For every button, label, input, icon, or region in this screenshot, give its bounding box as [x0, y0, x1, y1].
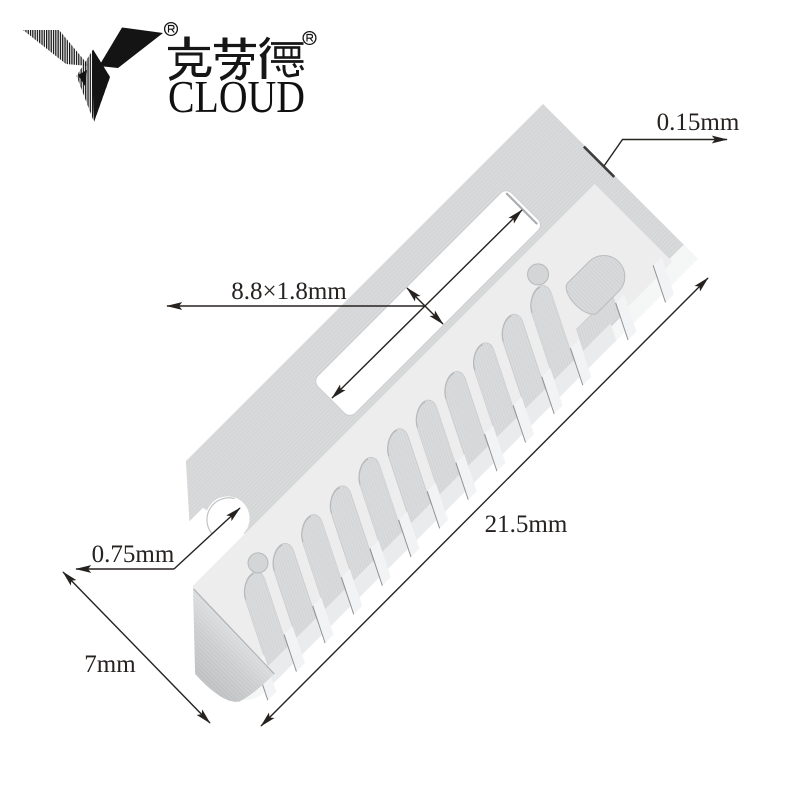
svg-text:0.15mm: 0.15mm: [657, 109, 740, 136]
svg-text:0.75mm: 0.75mm: [92, 541, 175, 568]
svg-text:21.5mm: 21.5mm: [485, 511, 568, 538]
svg-text:CLOUD: CLOUD: [168, 71, 305, 122]
svg-text:7mm: 7mm: [84, 651, 136, 678]
svg-text:8.8×1.8mm: 8.8×1.8mm: [231, 278, 347, 305]
